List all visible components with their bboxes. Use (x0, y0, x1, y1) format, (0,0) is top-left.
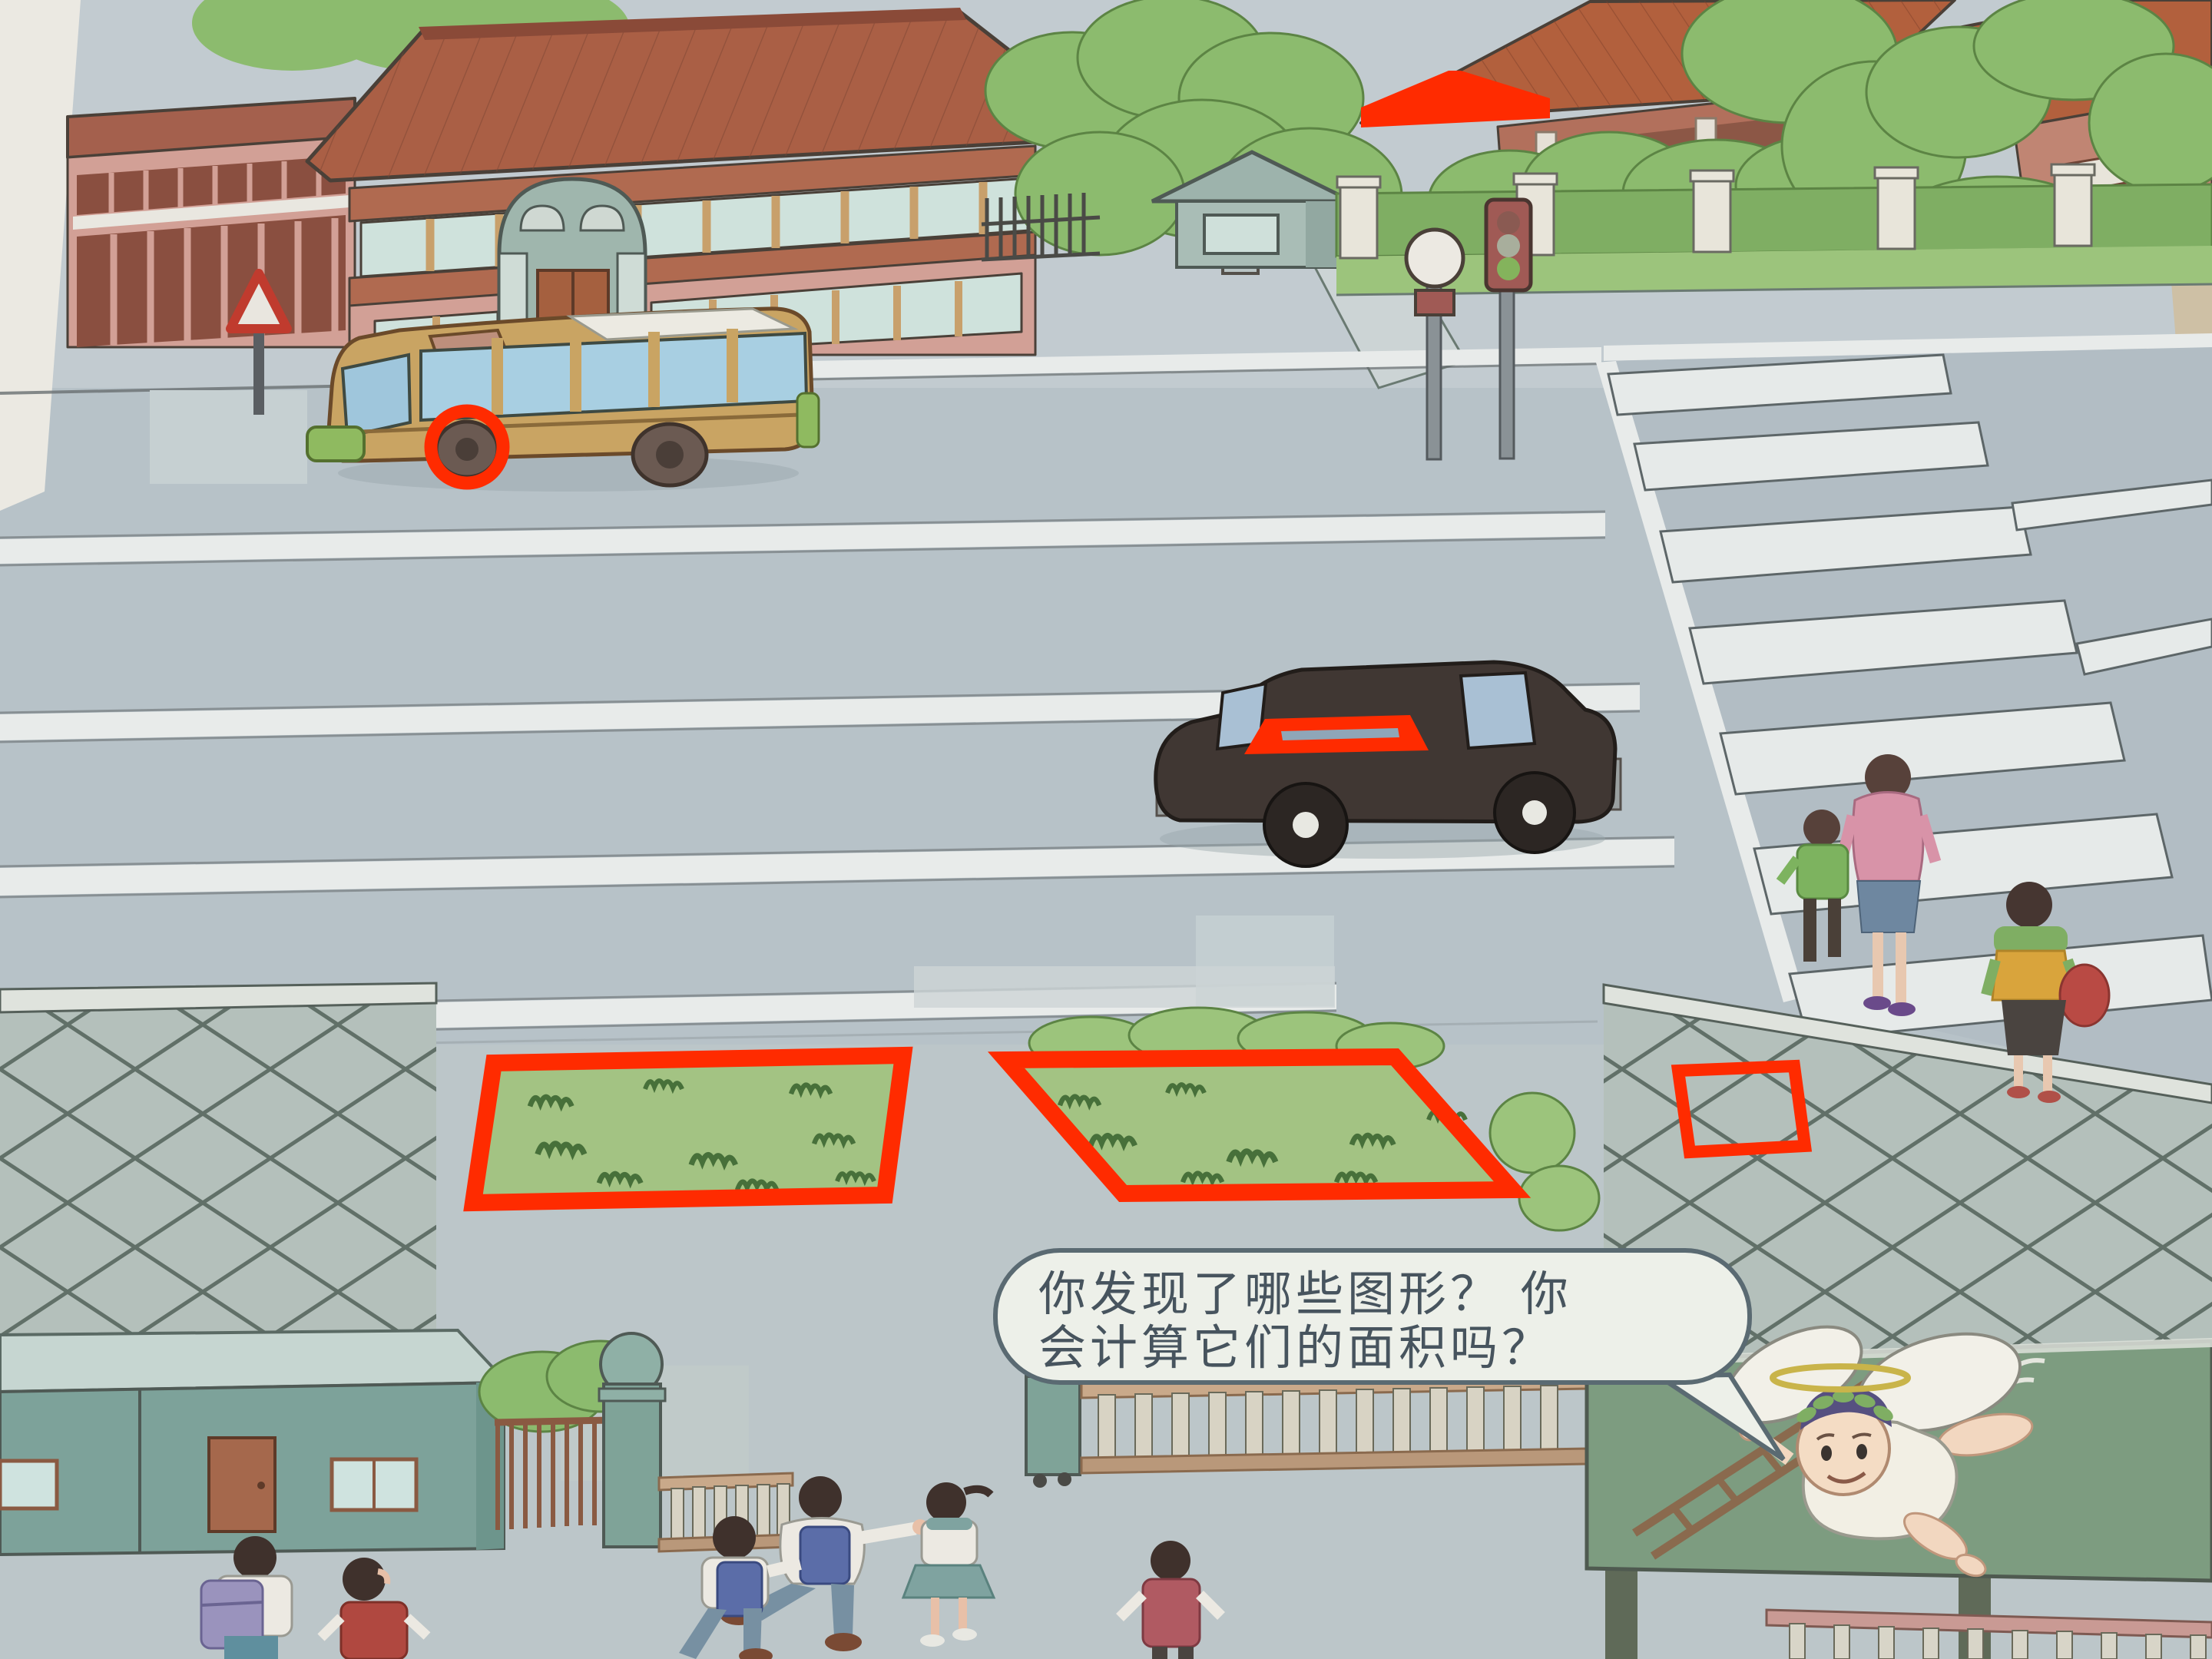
bus (307, 309, 819, 492)
girl-skirt (903, 1565, 994, 1598)
street-scene-illustration: 你发现了哪些图形？ 你 会计算它们的面积吗？ (0, 0, 2212, 1659)
gatehouse-building (0, 1330, 507, 1555)
textbook-page-photo: 你发现了哪些图形？ 你 会计算它们的面积吗？ (0, 0, 2212, 1659)
blue-backpack (800, 1527, 849, 1584)
yellow-light (1497, 234, 1520, 257)
left-grass-rectangle (473, 1055, 903, 1203)
gatehouse-window (0, 1461, 57, 1508)
blank-patch (150, 390, 307, 484)
pink-backpack (1143, 1579, 1200, 1647)
bus-front-bumper (307, 427, 364, 461)
car (1156, 662, 1621, 866)
car-front-window (1461, 673, 1535, 748)
bus-windshield (343, 355, 410, 436)
blue-backpack (717, 1562, 762, 1616)
red-handbag (2060, 965, 2109, 1026)
blank-patch (914, 966, 1335, 1008)
gatehouse-door (209, 1438, 275, 1532)
green-light (1497, 257, 1520, 280)
iron-fence (982, 193, 1100, 260)
gate-pillar (604, 1384, 661, 1547)
red-backpack (341, 1602, 407, 1659)
red-light (1497, 211, 1520, 234)
bubble-text-line2: 会计算它们的面积吗？ (1038, 1320, 1553, 1376)
left-lattice-wall (0, 983, 436, 1344)
bubble-text-line1: 你发现了哪些图形？ 你 (1038, 1266, 1572, 1322)
